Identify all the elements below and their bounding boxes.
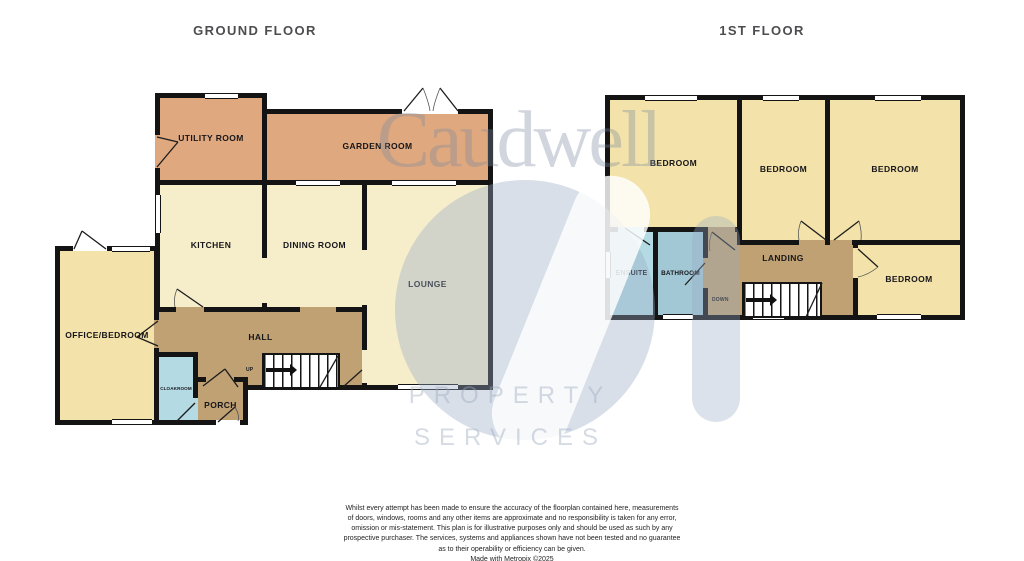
floorplan-canvas: GROUND FLOOR 1ST FLOOR HALL UTILITY ROOM… — [0, 0, 1024, 561]
room-label-porch: PORCH — [204, 401, 237, 410]
room-office-bedroom: OFFICE/BEDROOM — [55, 246, 159, 425]
room-label-office-bedroom: OFFICE/BEDROOM — [65, 331, 149, 340]
disclaimer-line: Whilst every attempt has been made to en… — [0, 504, 1024, 514]
room-label-lounge: LOUNGE — [408, 280, 447, 289]
door-opening — [703, 258, 708, 288]
room-label-bedroom-4: BEDROOM — [885, 275, 932, 284]
watermark-word-services: SERVICES — [318, 424, 703, 452]
stairs-up-label: UP — [246, 367, 253, 373]
door-opening — [206, 377, 234, 382]
window — [296, 180, 340, 186]
disclaimer-credit: Made with Metropix ©2025 — [0, 555, 1024, 561]
first-floor-title: 1ST FLOOR — [652, 23, 872, 38]
room-cloakroom: CLOAKROOM — [154, 352, 198, 425]
door-opening — [362, 350, 367, 383]
room-label-bedroom-3: BEDROOM — [871, 165, 918, 174]
room-bedroom-2: BEDROOM — [737, 95, 830, 245]
door-opening-french-doors — [402, 109, 458, 114]
window — [663, 314, 693, 320]
window — [645, 95, 697, 101]
door-opening — [154, 320, 159, 348]
window — [155, 195, 161, 233]
door-opening — [73, 246, 107, 251]
room-label-garden: GARDEN ROOM — [342, 142, 412, 151]
stairs-up-arrow-icon — [266, 368, 290, 372]
window — [205, 93, 238, 99]
door-opening — [300, 307, 336, 312]
door-opening — [176, 307, 204, 312]
room-ensuite: ENSUITE — [605, 227, 658, 320]
window — [877, 314, 921, 320]
door-opening — [830, 240, 852, 245]
door-opening — [618, 227, 644, 232]
room-bedroom-1: BEDROOM — [605, 95, 742, 232]
stairs-down-arrow-icon — [746, 298, 770, 302]
room-label-ensuite: ENSUITE — [616, 270, 648, 278]
window — [112, 246, 150, 252]
window — [763, 95, 799, 101]
window — [875, 95, 921, 101]
room-utility: UTILITY ROOM — [155, 93, 267, 185]
room-porch: PORCH — [193, 377, 248, 425]
disclaimer-line: omission or mis-statement. This plan is … — [0, 524, 1024, 534]
door-opening — [799, 240, 825, 245]
room-dining: DINING ROOM — [262, 180, 367, 312]
window — [605, 252, 611, 278]
room-bedroom-4: BEDROOM — [853, 240, 965, 320]
disclaimer-line: of doors, windows, rooms and any other i… — [0, 514, 1024, 524]
room-label-bedroom-2: BEDROOM — [760, 165, 807, 174]
disclaimer-text: Whilst every attempt has been made to en… — [0, 504, 1024, 561]
disclaimer-line: prospective purchaser. The services, sys… — [0, 534, 1024, 544]
room-kitchen: KITCHEN — [155, 180, 267, 312]
door-opening — [853, 248, 858, 278]
door-opening — [262, 258, 267, 303]
room-label-hall: HALL — [248, 333, 272, 342]
room-label-kitchen: KITCHEN — [191, 241, 232, 250]
door-opening — [708, 227, 735, 232]
room-label-utility: UTILITY ROOM — [178, 134, 244, 143]
door-opening — [216, 420, 240, 425]
room-bedroom-3: BEDROOM — [825, 95, 965, 245]
disclaimer-line: as to their operability or efficiency ca… — [0, 545, 1024, 555]
window — [398, 384, 458, 390]
door-opening — [362, 250, 367, 305]
room-label-dining: DINING ROOM — [283, 241, 346, 250]
room-label-cloakroom: CLOAKROOM — [160, 386, 192, 391]
room-lounge: LOUNGE — [362, 180, 493, 390]
window — [112, 419, 152, 425]
room-label-bedroom-1: BEDROOM — [650, 159, 697, 168]
room-bathroom: BATHROOM — [653, 227, 708, 320]
window — [392, 180, 456, 186]
door-opening — [193, 398, 198, 420]
room-label-landing: LANDING — [762, 254, 804, 263]
room-label-bathroom: BATHROOM — [661, 270, 700, 277]
door-opening — [155, 135, 160, 168]
room-garden: GARDEN ROOM — [262, 109, 493, 185]
stairs-down-label: DOWN — [712, 297, 729, 303]
ground-floor-title: GROUND FLOOR — [145, 23, 365, 38]
